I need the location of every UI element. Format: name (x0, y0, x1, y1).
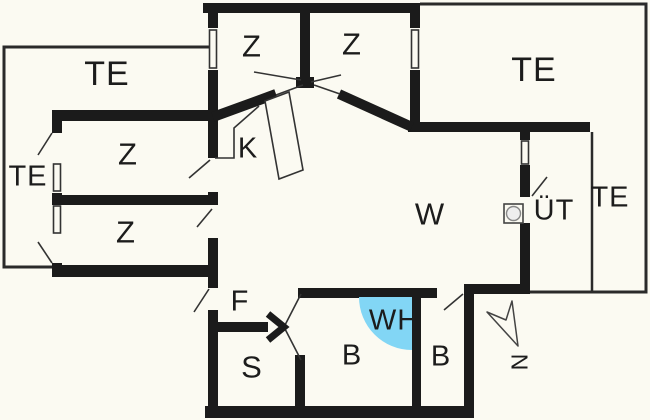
room-label-bedroom-lower-left: Z (116, 217, 136, 248)
fireplace-icon (504, 204, 523, 223)
north-arrow-icon (487, 301, 518, 346)
room-label-bedroom-top-right: Z (342, 29, 362, 60)
room-label-terrace-left: TE (8, 163, 47, 192)
window-icon (210, 30, 217, 68)
terrace-outline (4, 4, 646, 292)
pivot-door-icon (268, 314, 284, 340)
room-label-bedroom-top-left: Z (242, 31, 262, 62)
window-icon (54, 164, 61, 191)
window-icon (522, 141, 529, 164)
room-label-whirlpool: WH (369, 307, 419, 336)
room-label-terrace-top-right: TE (511, 53, 556, 87)
window-icon (54, 206, 61, 233)
room-label-bathroom-right: B (431, 343, 451, 372)
floor-plan: TE Z Z TE TE Z Z K W ÜT TE F WH S B B N (0, 0, 650, 420)
room-label-hallway: F (231, 288, 250, 317)
room-label-bedroom-mid-left: Z (118, 139, 138, 170)
room-label-terrace-top-left: TE (84, 57, 129, 91)
room-label-living-room: W (415, 199, 445, 230)
room-label-terrace-right: TE (590, 184, 629, 213)
diagonal-walls (213, 94, 412, 127)
room-label-kitchen: K (238, 135, 258, 164)
room-label-bathroom-left: B (342, 342, 362, 371)
compass-north-label: N (508, 354, 531, 371)
window-icon (412, 30, 419, 68)
room-label-sauna: S (241, 352, 263, 383)
kitchen-island (265, 92, 303, 179)
room-label-covered-terrace: ÜT (534, 197, 575, 226)
